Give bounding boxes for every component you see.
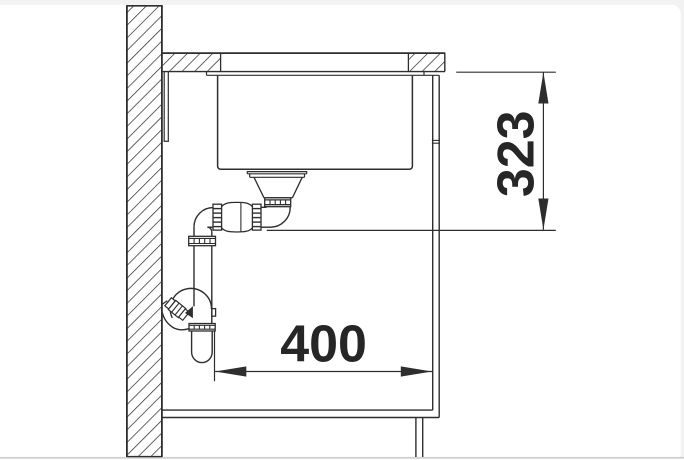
svg-text:323: 323 bbox=[487, 110, 545, 197]
svg-text:400: 400 bbox=[280, 316, 367, 374]
